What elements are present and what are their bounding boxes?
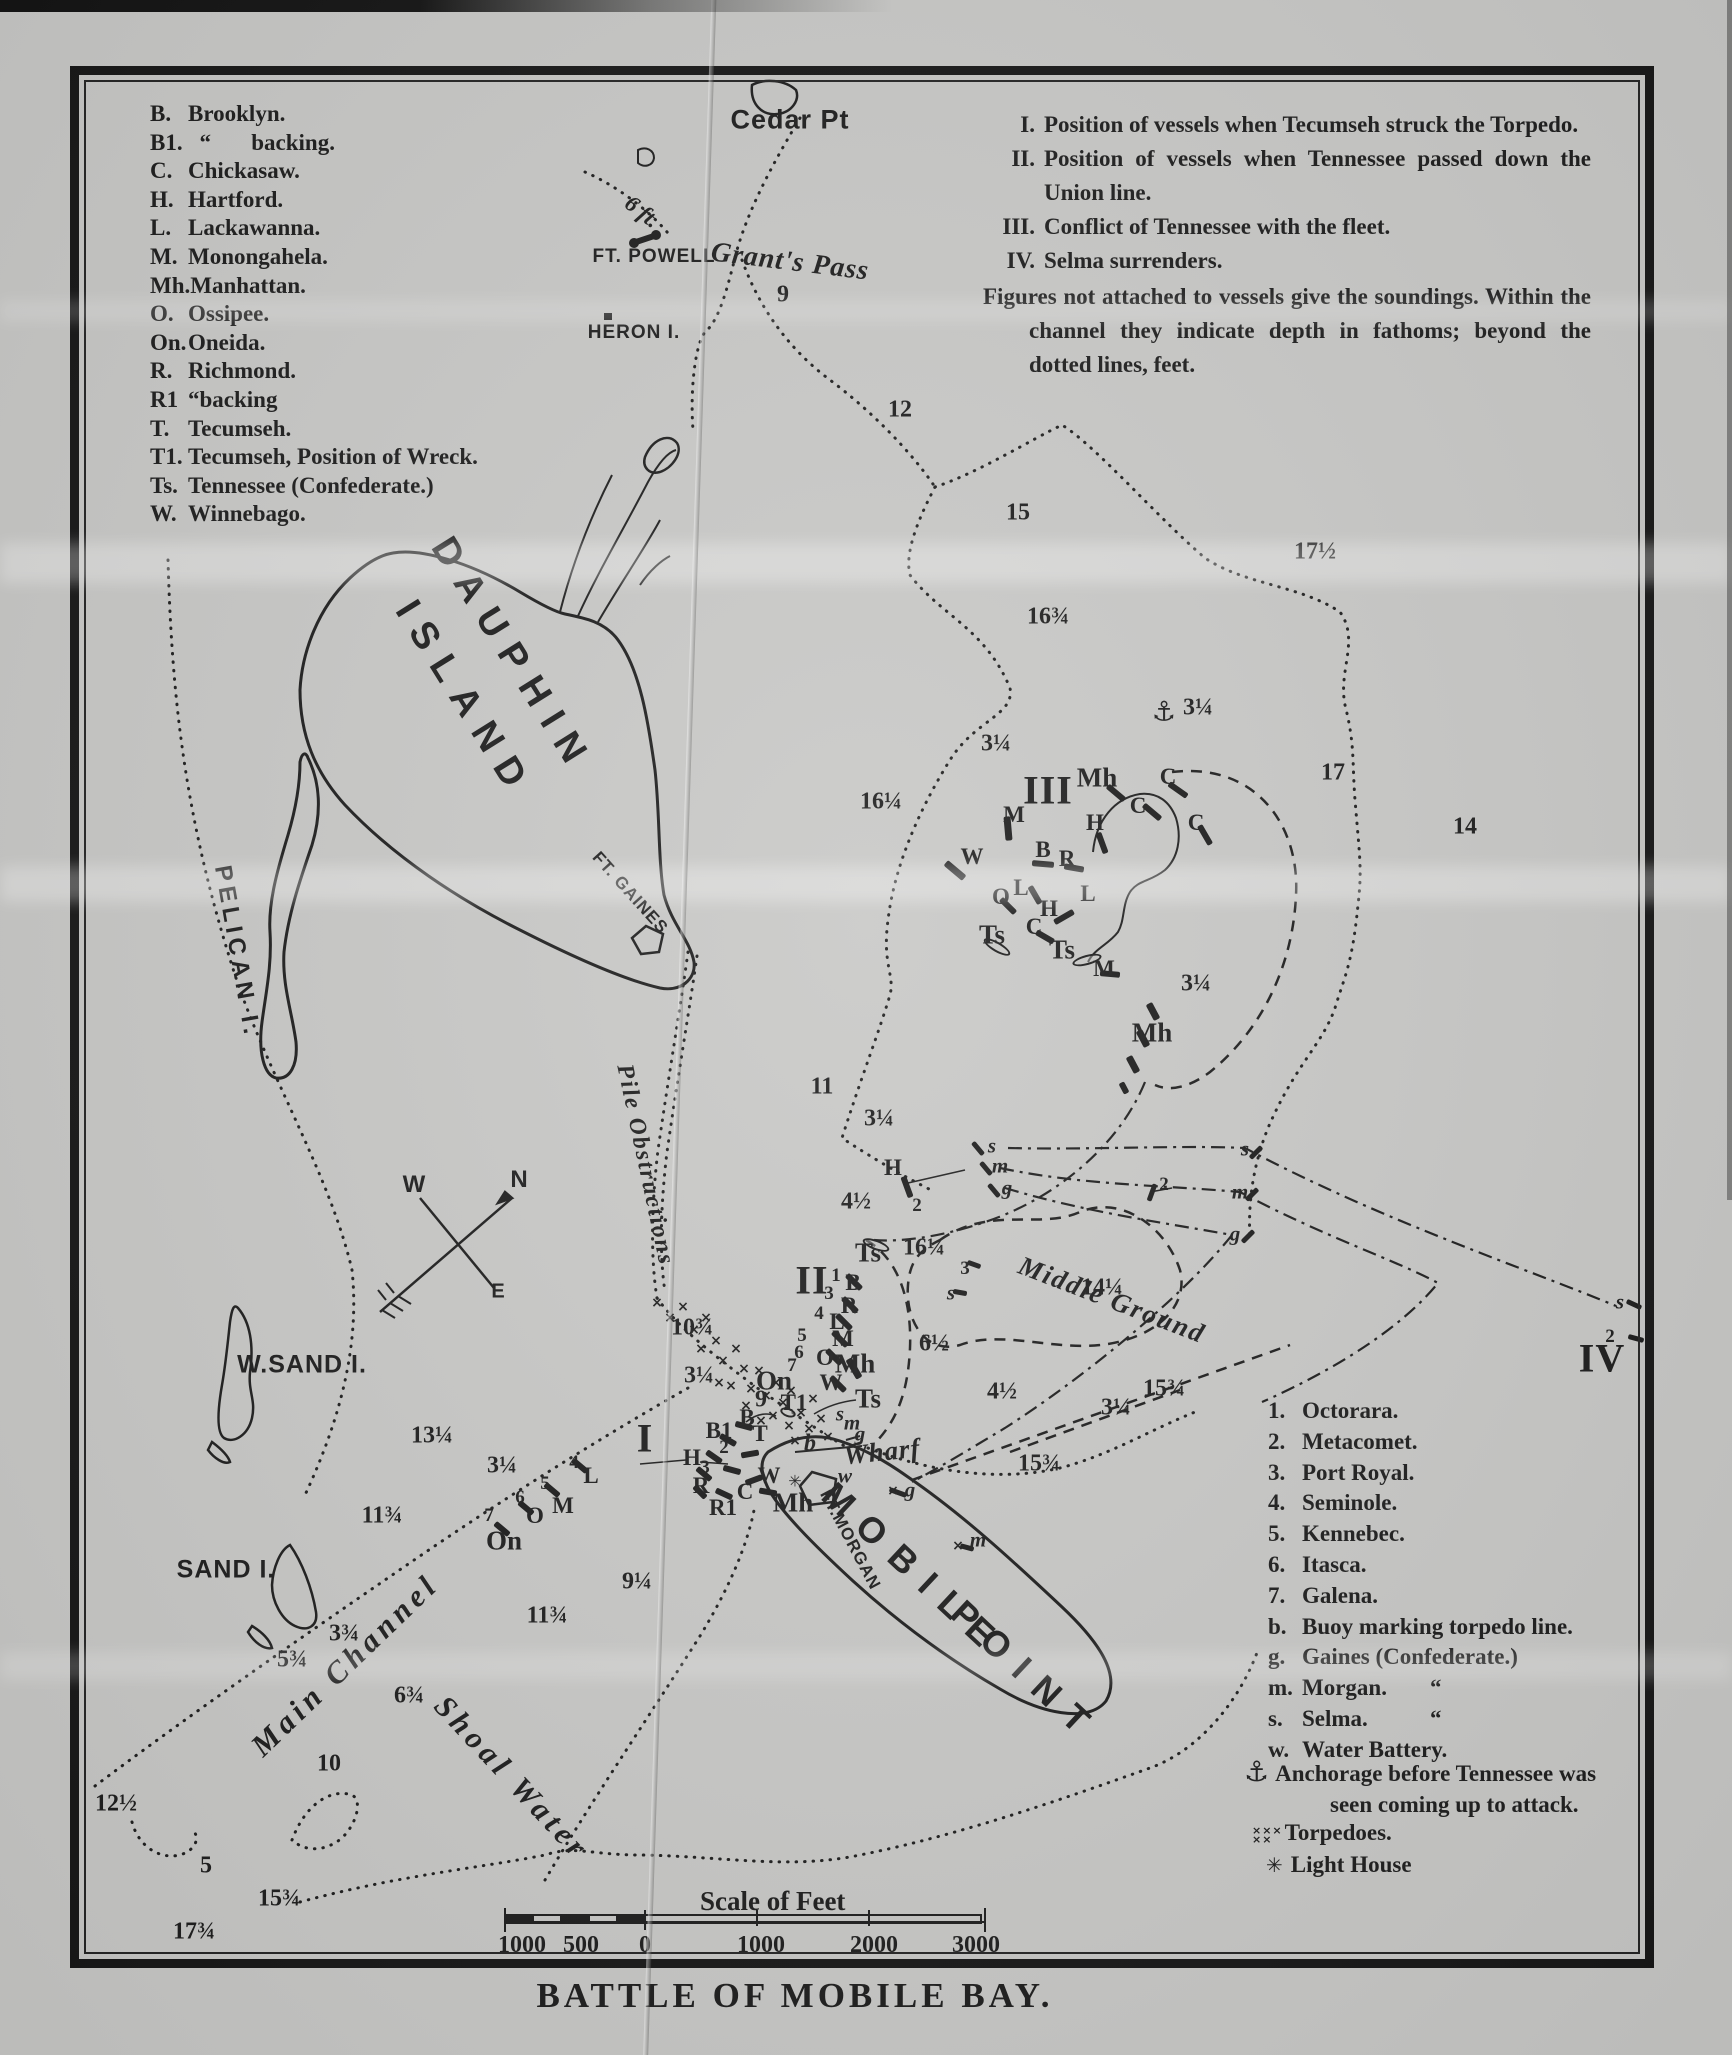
ditto-mark: “ <box>1430 1706 1442 1731</box>
sounding: 3¼ <box>981 731 1011 758</box>
fleet-number-legend: 1.Octorara.2.Metacomet.3.Port Royal.4.Se… <box>1268 1396 1668 1766</box>
torpedo-mark: × <box>651 1295 663 1311</box>
sounding: 13¼ <box>411 1423 453 1450</box>
vessel-marker-B: B <box>1035 837 1050 863</box>
vessel-abbr: M. <box>150 243 188 272</box>
fleet-abbr: 2. <box>1268 1427 1302 1458</box>
vessel-name: Manhattan. <box>190 273 306 298</box>
scale-caption: Scale of Feet <box>700 1886 845 1917</box>
vessel-marker-g: g <box>905 1478 916 1503</box>
map-title: BATTLE OF MOBILE BAY. <box>0 1976 1590 2016</box>
fleet-name: Itasca. <box>1302 1550 1430 1581</box>
vessel-marker-Ts: Ts <box>855 1238 881 1269</box>
torpedo-mark: × <box>695 1341 707 1357</box>
torpedo-mark: × <box>767 1408 779 1424</box>
vessel-marker-m: m <box>1232 1180 1248 1205</box>
note-text: Selma surrenders. <box>1044 244 1591 278</box>
vessel-legend-item: T.Tecumseh. <box>150 415 580 444</box>
vessel-abbr: C. <box>150 157 188 186</box>
vessel-marker-2: 2 <box>1605 1326 1615 1348</box>
pelican-island-shape <box>261 754 319 1078</box>
torpedo-mark: × <box>789 1433 801 1449</box>
vessel-marker-O: O <box>816 1345 834 1371</box>
vessel-marker-s: s <box>1241 1137 1249 1162</box>
vessel-abbr: W. <box>150 500 188 529</box>
torpedoes-label: Torpedoes. <box>1285 1820 1392 1845</box>
vessel-marker-T1: T1 <box>781 1390 808 1416</box>
torpedo-mark: × <box>725 1378 737 1394</box>
sounding: 6¾ <box>394 1683 424 1710</box>
vessel-marker-7: 7 <box>484 1505 494 1527</box>
vessel-marker-6: 6 <box>515 1487 525 1509</box>
vessel-marker-T: T <box>752 1421 767 1447</box>
place-label-w-sand-i-: W.SAND I. <box>237 1351 367 1380</box>
vessel-marker-4: 4 <box>569 1452 579 1474</box>
fleet-legend-item: m.Morgan.“ <box>1268 1673 1668 1704</box>
lighthouse-note: ✳Light House <box>1266 1852 1412 1878</box>
vessel-marker-R: R <box>693 1473 710 1499</box>
vessel-marker-M: M <box>1093 956 1115 982</box>
sounding: 3¼ <box>1101 1395 1131 1422</box>
note-numeral: II. <box>983 142 1035 210</box>
vessel-legend-item: L.Lackawanna. <box>150 214 580 243</box>
vessel-name: Brooklyn. <box>188 101 285 126</box>
vessel-name: “ backing. <box>188 130 335 155</box>
fleet-name: Selma. <box>1302 1704 1430 1735</box>
scale-label: 1000 <box>737 1932 785 1959</box>
vessel-marker-m: m <box>970 1528 986 1553</box>
vessel-marker-s: s <box>947 1281 955 1306</box>
vessel-legend-item: R.Richmond. <box>150 357 580 386</box>
fleet-legend-item: g.Gaines (Confederate.) <box>1268 1642 1668 1673</box>
fleet-name: Port Royal. <box>1302 1458 1430 1489</box>
vessel-marker-C: C <box>1188 810 1205 836</box>
sounding: 17 <box>1321 760 1345 787</box>
torpedo-mark: × <box>688 1322 700 1338</box>
vessel-abbr: Mh. <box>150 272 190 301</box>
vessel-name: Lackawanna. <box>188 215 320 240</box>
fort-powell-symbol <box>604 230 661 320</box>
fleet-name: Galena. <box>1302 1581 1430 1612</box>
ft-powell-islet <box>638 148 654 165</box>
place-label-n: N <box>510 1166 527 1194</box>
fleet-name: Metacomet. <box>1302 1427 1430 1458</box>
sounding: 3¼ <box>684 1363 714 1390</box>
note-numeral: IV. <box>983 244 1035 278</box>
anchorage-note-line1: Anchorage before Tennessee was <box>1275 1761 1596 1786</box>
sounding: 11¾ <box>362 1503 403 1530</box>
vessel-abbr: On. <box>150 329 188 358</box>
fleet-legend-item: 2.Metacomet. <box>1268 1427 1668 1458</box>
scale-label: 1000 <box>498 1932 546 1959</box>
vessel-legend-item: C.Chickasaw. <box>150 157 580 186</box>
vessel-marker-Mh: Mh <box>1077 763 1118 794</box>
vessel-marker-Mh: Mh <box>1132 1018 1173 1049</box>
sounding: 11 <box>811 1074 834 1101</box>
anchor-icon: ⚓ <box>1244 1755 1269 1788</box>
note-footnote: Figures not attached to vessels give the… <box>983 280 1591 382</box>
w-sand-island-shape <box>208 1307 253 1463</box>
torpedo-mark: × <box>677 1299 689 1315</box>
fleet-legend-item: s.Selma.“ <box>1268 1704 1668 1735</box>
torpedoes-icon: ××× ×× <box>1252 1826 1283 1844</box>
torpedo-mark: × <box>738 1361 750 1377</box>
torpedo-mark: × <box>952 1538 964 1554</box>
vessel-name: Chickasaw. <box>188 158 300 183</box>
vessel-name: Hartford. <box>188 187 283 212</box>
vessel-name: “backing <box>188 387 277 412</box>
vessel-name: Richmond. <box>188 358 296 383</box>
vessel-marker-R1: R1 <box>709 1495 737 1521</box>
sounding: 4½ <box>841 1189 871 1216</box>
note-item: II.Position of vessels when Tennessee pa… <box>983 142 1591 210</box>
vessel-marker-L: L <box>1080 881 1095 907</box>
note-item: III.Conflict of Tennessee with the fleet… <box>983 210 1591 244</box>
vessel-legend-item: H.Hartford. <box>150 186 580 215</box>
sounding: 17¾ <box>173 1919 215 1946</box>
vessel-name: Tecumseh, Position of Wreck. <box>188 444 478 469</box>
battle-of-mobile-bay-map: Cedar Pt6 ft.FT. POWELLGrant's PassHERON… <box>0 0 1732 2055</box>
fleet-abbr: g. <box>1268 1642 1302 1673</box>
vessel-marker-3: 3 <box>960 1258 970 1280</box>
torpedo-mark: × <box>822 1429 834 1445</box>
vessel-name: Tecumseh. <box>188 416 291 441</box>
torpedo-mark: × <box>783 1418 795 1434</box>
fleet-abbr: 6. <box>1268 1550 1302 1581</box>
scale-label: 3000 <box>952 1932 1000 1959</box>
fleet-legend-item: 1.Octorara. <box>1268 1396 1668 1427</box>
vessel-marker-g: g <box>1230 1222 1241 1247</box>
vessel-abbr: H. <box>150 186 188 215</box>
anchor-icon: ⚓ <box>1152 697 1176 728</box>
position-numeral-IV: IV <box>1579 1335 1625 1382</box>
vessel-marker-C: C <box>1160 764 1177 790</box>
fleet-legend-item: 6.Itasca. <box>1268 1550 1668 1581</box>
note-item: I.Position of vessels when Tecumseh stru… <box>983 108 1591 142</box>
vessel-marker-4: 4 <box>814 1303 824 1325</box>
scale-label: 2000 <box>850 1932 898 1959</box>
vessel-marker-3: 3 <box>824 1283 834 1305</box>
place-label-heron-i-: HERON I. <box>588 322 680 344</box>
fleet-name: Kennebec. <box>1302 1519 1430 1550</box>
note-text: Position of vessels when Tennessee passe… <box>1044 142 1591 210</box>
torpedo-mark: × <box>730 1341 742 1357</box>
sounding: 16¼ <box>860 789 902 816</box>
lighthouse-icon: ✳ <box>1266 1853 1283 1877</box>
vessel-legend-item: Ts.Tennessee (Confederate.) <box>150 472 580 501</box>
fleet-name: Buoy marking torpedo line. <box>1302 1612 1573 1643</box>
vessel-marker-R: R <box>1059 846 1076 872</box>
torpedo-mark: × <box>700 1310 712 1326</box>
torpedo-mark: × <box>664 1310 676 1326</box>
fleet-abbr: 3. <box>1268 1458 1302 1489</box>
vessel-marker-O: O <box>526 1503 544 1529</box>
torpedo-mark: × <box>815 1411 827 1427</box>
vessel-marker-2: 2 <box>719 1437 729 1459</box>
vessel-marker-M: M <box>552 1493 574 1519</box>
vessel-marker-H: H <box>683 1445 701 1471</box>
sounding: 3¼ <box>1183 695 1213 722</box>
vessel-legend-item: W.Winnebago. <box>150 500 580 529</box>
marsh-islet <box>644 438 678 473</box>
vessel-abbr: T. <box>150 415 188 444</box>
fleet-legend-item: 7.Galena. <box>1268 1581 1668 1612</box>
vessel-abbr: R1 <box>150 386 188 415</box>
vessel-abbreviation-legend: B.Brooklyn.B1. “ backing.C.Chickasaw.H.H… <box>150 100 580 529</box>
vessel-legend-item: T1.Tecumseh, Position of Wreck. <box>150 443 580 472</box>
vessel-abbr: Ts. <box>150 472 188 501</box>
sounding: 11¾ <box>527 1603 568 1630</box>
vessel-marker-W: W <box>820 1370 843 1396</box>
sounding: 3¼ <box>487 1453 517 1480</box>
vessel-name: Ossipee. <box>188 301 269 326</box>
vessel-marker-H: H <box>1086 810 1104 836</box>
note-text: Conflict of Tennessee with the fleet. <box>1044 210 1591 244</box>
place-label-e: E <box>491 1281 504 1304</box>
fleet-legend-item: 4.Seminole. <box>1268 1488 1668 1519</box>
sounding: 10 <box>317 1751 341 1778</box>
note-text: Position of vessels when Tecumseh struck… <box>1044 108 1591 142</box>
sounding: 15¾ <box>258 1886 300 1913</box>
anchorage-note-line2: seen coming up to attack. <box>1330 1789 1664 1820</box>
place-label-ft-powell: FT. POWELL <box>593 246 716 268</box>
vessel-abbr: T1. <box>150 443 188 472</box>
fleet-abbr: b. <box>1268 1612 1302 1643</box>
vessel-marker-5: 5 <box>540 1473 550 1495</box>
vessel-marker-Ts: Ts <box>979 920 1005 951</box>
lighthouse-label: Light House <box>1291 1852 1412 1877</box>
vessel-marker-C: C <box>737 1479 754 1505</box>
fleet-name: Morgan. <box>1302 1673 1430 1704</box>
vessel-marker-W: W <box>758 1463 781 1489</box>
fort-powell-bar <box>636 236 654 242</box>
vessel-marker-g: g <box>1002 1176 1013 1201</box>
torpedo-mark: × <box>807 1391 819 1407</box>
vessel-abbr: O. <box>150 300 188 329</box>
lighthouse-icon: ✳ <box>788 1472 801 1491</box>
vessel-marker-s: s <box>1616 1290 1624 1315</box>
vessel-legend-item: R1“backing <box>150 386 580 415</box>
vessel-marker-2: 2 <box>912 1195 922 1217</box>
sounding: 14 <box>1453 814 1477 841</box>
vessel-legend-item: B.Brooklyn. <box>150 100 580 129</box>
vessel-legend-item: Mh.Manhattan. <box>150 272 580 301</box>
vessel-marker-W: W <box>961 844 984 870</box>
vessel-abbr: R. <box>150 357 188 386</box>
sounding: 14¼ <box>1081 1275 1123 1302</box>
fleet-abbr: 4. <box>1268 1488 1302 1519</box>
sounding: 16¼ <box>903 1235 945 1262</box>
vessel-legend-item: M.Monongahela. <box>150 243 580 272</box>
vessel-marker-On: On <box>486 1526 522 1557</box>
vessel-abbr: B. <box>150 100 188 129</box>
fleet-name: Octorara. <box>1302 1396 1430 1427</box>
fleet-name: Seminole. <box>1302 1488 1430 1519</box>
vessel-marker-b: b <box>804 1431 816 1458</box>
note-numeral: I. <box>983 108 1035 142</box>
vessel-marker-H: H <box>1040 896 1058 922</box>
sounding: 9¼ <box>622 1569 652 1596</box>
position-numeral-III: III <box>1023 767 1073 814</box>
vessel-abbr: L. <box>150 214 188 243</box>
fleet-abbr: s. <box>1268 1704 1302 1735</box>
position-notes-legend: I.Position of vessels when Tecumseh stru… <box>983 108 1591 382</box>
vessel-marker-O: O <box>992 884 1010 910</box>
place-label-sand-i-: SAND I. <box>177 1556 276 1585</box>
note-numeral: III. <box>983 210 1035 244</box>
scale-label: 500 <box>563 1932 599 1959</box>
tennessee-loop <box>866 1240 910 1446</box>
vessel-marker-2: 2 <box>1159 1174 1169 1196</box>
sounding: 15¾ <box>1018 1451 1060 1478</box>
sounding: 15¾ <box>1143 1376 1185 1403</box>
torpedo-mark: × <box>717 1353 729 1369</box>
fleet-legend-item: 3.Port Royal. <box>1268 1458 1668 1489</box>
vessel-name: Monongahela. <box>188 244 328 269</box>
fleet-legend-item: b.Buoy marking torpedo line. <box>1268 1612 1668 1643</box>
fleet-abbr: 5. <box>1268 1519 1302 1550</box>
torpedo-mark: × <box>710 1333 722 1349</box>
sounding: 5¾ <box>277 1647 307 1674</box>
fleet-abbr: 7. <box>1268 1581 1302 1612</box>
vessel-name: Winnebago. <box>188 501 306 526</box>
sounding: 9 <box>777 282 789 309</box>
sounding: 17½ <box>1294 539 1336 566</box>
sounding: 4½ <box>987 1379 1017 1406</box>
sounding: 12½ <box>95 1791 137 1818</box>
sounding: 5 <box>200 1853 212 1880</box>
vessel-abbr: B1. <box>150 129 188 158</box>
vessel-name: Oneida. <box>188 330 265 355</box>
fleet-abbr: 1. <box>1268 1396 1302 1427</box>
vessel-marker-L: L <box>583 1463 598 1489</box>
fleet-name: Gaines (Confederate.) <box>1302 1642 1518 1673</box>
sounding: 15 <box>1006 500 1030 527</box>
vessel-marker-Ts: Ts <box>1049 935 1075 966</box>
fleet-legend-item: 5.Kennebec. <box>1268 1519 1668 1550</box>
vessel-name: Tennessee (Confederate.) <box>188 473 434 498</box>
sounding: 16¾ <box>1027 604 1069 631</box>
anchorage-note: ⚓Anchorage before Tennessee was seen com… <box>1244 1756 1664 1820</box>
vessel-marker-M: M <box>1003 802 1025 828</box>
sounding: 12 <box>888 397 912 424</box>
torpedo-mark: × <box>887 1483 899 1499</box>
vessel-legend-item: On.Oneida. <box>150 329 580 358</box>
vessel-marker-g: g <box>855 1422 866 1447</box>
vessel-marker-C: C <box>1130 793 1147 819</box>
position-numeral-I: I <box>637 1415 654 1462</box>
vessel-marker-Mh: Mh <box>773 1488 814 1519</box>
sounding: 3¼ <box>1181 971 1211 998</box>
vessel-marker-H: H <box>884 1155 902 1181</box>
ditto-mark: “ <box>1430 1675 1442 1700</box>
sounding: 6½ <box>919 1331 949 1358</box>
place-label-w: W <box>403 1171 426 1199</box>
sounding: 3¼ <box>864 1106 894 1133</box>
fleet-abbr: m. <box>1268 1673 1302 1704</box>
place-label-cedar-pt: Cedar Pt <box>730 105 849 136</box>
torpedo-mark: × <box>713 1375 725 1391</box>
torpedoes-note: ××× ××Torpedoes. <box>1252 1820 1392 1846</box>
vessel-legend-item: B1. “ backing. <box>150 129 580 158</box>
vessel-marker-w: w <box>838 1464 852 1489</box>
scale-label: 0 <box>639 1932 651 1959</box>
vessel-marker-L: L <box>1013 875 1028 901</box>
vessel-marker-C: C <box>1026 914 1043 940</box>
note-item: IV.Selma surrenders. <box>983 244 1591 278</box>
vessel-legend-item: O.Ossipee. <box>150 300 580 329</box>
sounding: 3¾ <box>329 1621 359 1648</box>
